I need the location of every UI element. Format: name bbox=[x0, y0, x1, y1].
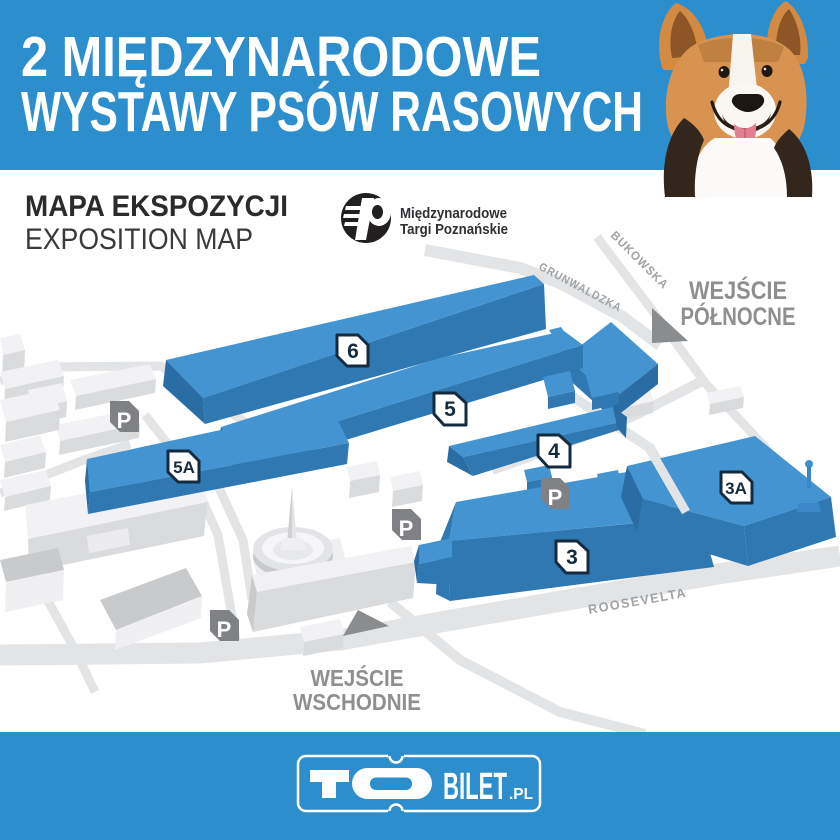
svg-text:EXPOSITION MAP: EXPOSITION MAP bbox=[25, 223, 253, 256]
svg-text:4: 4 bbox=[548, 440, 560, 463]
svg-text:WYSTAWY PSÓW RASOWYCH: WYSTAWY PSÓW RASOWYCH bbox=[21, 80, 643, 144]
svg-text:6: 6 bbox=[347, 340, 359, 363]
svg-text:5A: 5A bbox=[173, 458, 195, 477]
svg-text:Targi Poznańskie: Targi Poznańskie bbox=[400, 221, 508, 238]
svg-text:P: P bbox=[117, 408, 132, 433]
svg-text:WEJŚCIE: WEJŚCIE bbox=[689, 275, 787, 305]
svg-text:P: P bbox=[548, 485, 563, 510]
svg-text:WEJŚCIE: WEJŚCIE bbox=[311, 664, 404, 691]
svg-text:WSCHODNIE: WSCHODNIE bbox=[293, 689, 421, 715]
svg-text:5: 5 bbox=[444, 398, 456, 421]
svg-text:P: P bbox=[217, 617, 232, 642]
svg-text:PÓŁNOCNE: PÓŁNOCNE bbox=[681, 301, 796, 331]
svg-text:3: 3 bbox=[566, 546, 578, 569]
svg-text:MAPA EKSPOZYCJI: MAPA EKSPOZYCJI bbox=[25, 190, 288, 223]
svg-text:.PL: .PL bbox=[509, 786, 533, 803]
svg-text:P: P bbox=[399, 516, 414, 541]
svg-text:3A: 3A bbox=[725, 479, 747, 498]
svg-text:BILET: BILET bbox=[443, 766, 507, 808]
svg-text:Międzynarodowe: Międzynarodowe bbox=[400, 205, 507, 222]
